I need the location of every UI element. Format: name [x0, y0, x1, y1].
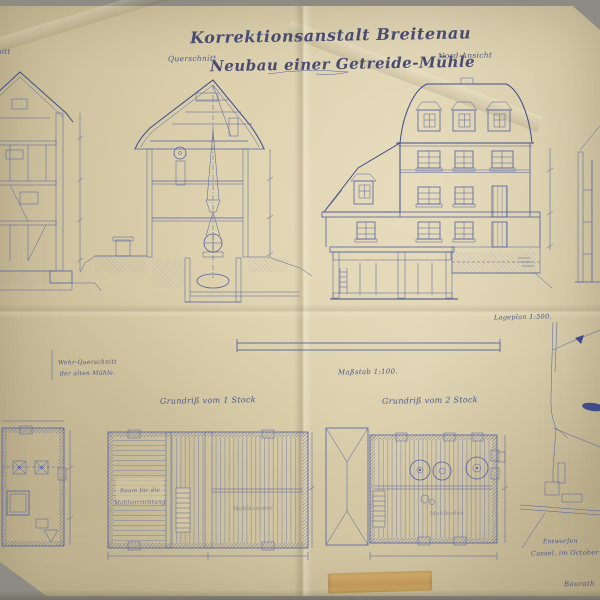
site-plan [520, 322, 600, 548]
photograph-of-architectural-plan: Korrektionsanstalt Breitenau Neubau eine… [0, 0, 600, 600]
plan-second-floor [326, 428, 508, 560]
label-mehlboden: Mehlboden [420, 511, 474, 518]
label-grundriss-1: Grundriß vom 1 Stock [160, 395, 256, 406]
paper-bottom-edge-shadow [0, 590, 600, 600]
scale-ruler [237, 339, 500, 352]
label-mahlkammer: Mahlkammer [226, 506, 280, 513]
drawing-linework [0, 6, 600, 596]
elevation-north [322, 78, 553, 299]
label-left-section: schnitt [0, 48, 11, 56]
label-nord-ansicht: Nord-Ansicht [438, 51, 492, 61]
section-longitudinal [0, 72, 101, 291]
signature-line-2: Cassel, im October [531, 548, 599, 557]
signature-line-3: Baurath [564, 580, 595, 589]
label-room-line-1: Raum für die [114, 488, 166, 495]
plan-old-mill [2, 421, 73, 546]
plan-sheet: Korrektionsanstalt Breitenau Neubau eine… [0, 6, 600, 596]
label-old-mill-note-2: der alten Mühle. [60, 370, 116, 378]
label-grundriss-2: Grundriß vom 2 Stock [382, 395, 478, 406]
label-lageplan: Lageplan 1:500. [494, 312, 552, 321]
label-old-mill-note-1: Wehr-Querschnitt [58, 358, 117, 366]
signature-line-1: Entworfen [543, 538, 578, 546]
label-massstab: Maßstab 1:100. [338, 367, 398, 376]
plan-first-floor [108, 430, 315, 560]
section-right-partial [575, 126, 600, 282]
label-room-line-2: Mahlvorrichtung [112, 500, 168, 507]
label-querschnitt: Querschnitt [168, 54, 217, 64]
section-cross [80, 80, 312, 302]
